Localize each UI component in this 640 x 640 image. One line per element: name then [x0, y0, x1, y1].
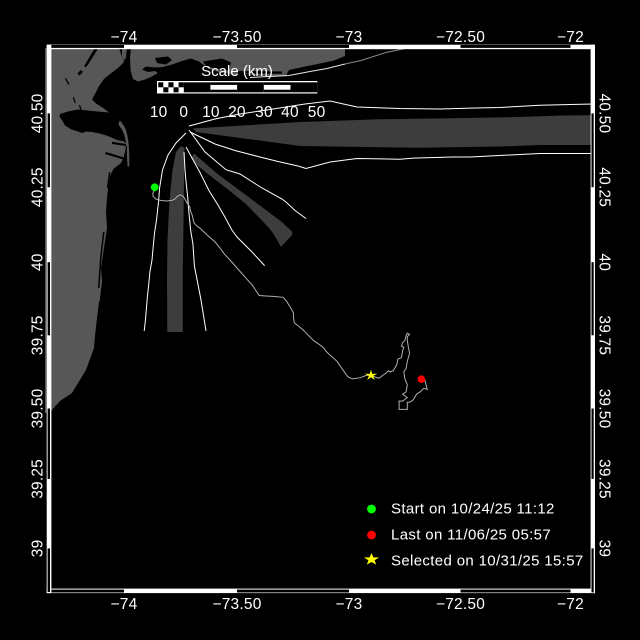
svg-text:39.75: 39.75 — [30, 315, 47, 355]
svg-text:−72: −72 — [557, 596, 584, 613]
svg-text:39.25: 39.25 — [30, 459, 47, 499]
svg-text:40.50: 40.50 — [596, 94, 613, 134]
svg-text:−74: −74 — [111, 29, 138, 46]
svg-text:30: 30 — [255, 104, 273, 121]
svg-text:−73: −73 — [336, 596, 363, 613]
svg-text:40.25: 40.25 — [596, 167, 613, 207]
svg-text:20: 20 — [228, 104, 246, 121]
svg-text:−73: −73 — [336, 29, 363, 46]
svg-text:Scale (km): Scale (km) — [201, 63, 273, 80]
svg-text:Selected on 10/31/25 15:57: Selected on 10/31/25 15:57 — [391, 553, 584, 570]
svg-text:39.75: 39.75 — [596, 315, 613, 355]
svg-text:Last on 11/06/25 05:57: Last on 11/06/25 05:57 — [391, 527, 551, 544]
svg-text:39: 39 — [30, 540, 47, 558]
svg-text:40.25: 40.25 — [30, 167, 47, 207]
svg-text:50: 50 — [308, 104, 326, 121]
svg-text:40: 40 — [30, 253, 47, 271]
svg-text:40.50: 40.50 — [30, 93, 47, 133]
svg-text:−72.50: −72.50 — [436, 596, 485, 613]
svg-text:39.50: 39.50 — [596, 389, 613, 429]
svg-text:39.50: 39.50 — [30, 388, 47, 428]
svg-text:−72.50: −72.50 — [436, 29, 485, 46]
svg-text:39.25: 39.25 — [596, 459, 613, 499]
svg-text:0: 0 — [179, 104, 188, 121]
svg-text:40: 40 — [596, 253, 613, 271]
svg-text:40: 40 — [281, 104, 299, 121]
svg-text:−73.50: −73.50 — [212, 596, 261, 613]
svg-text:Start on 10/24/25 11:12: Start on 10/24/25 11:12 — [391, 501, 555, 518]
svg-text:10: 10 — [150, 104, 168, 121]
svg-text:−72: −72 — [557, 29, 584, 46]
svg-text:−74: −74 — [111, 596, 138, 613]
svg-text:39: 39 — [596, 540, 613, 558]
svg-text:−73.50: −73.50 — [212, 29, 261, 46]
svg-text:10: 10 — [202, 104, 220, 121]
